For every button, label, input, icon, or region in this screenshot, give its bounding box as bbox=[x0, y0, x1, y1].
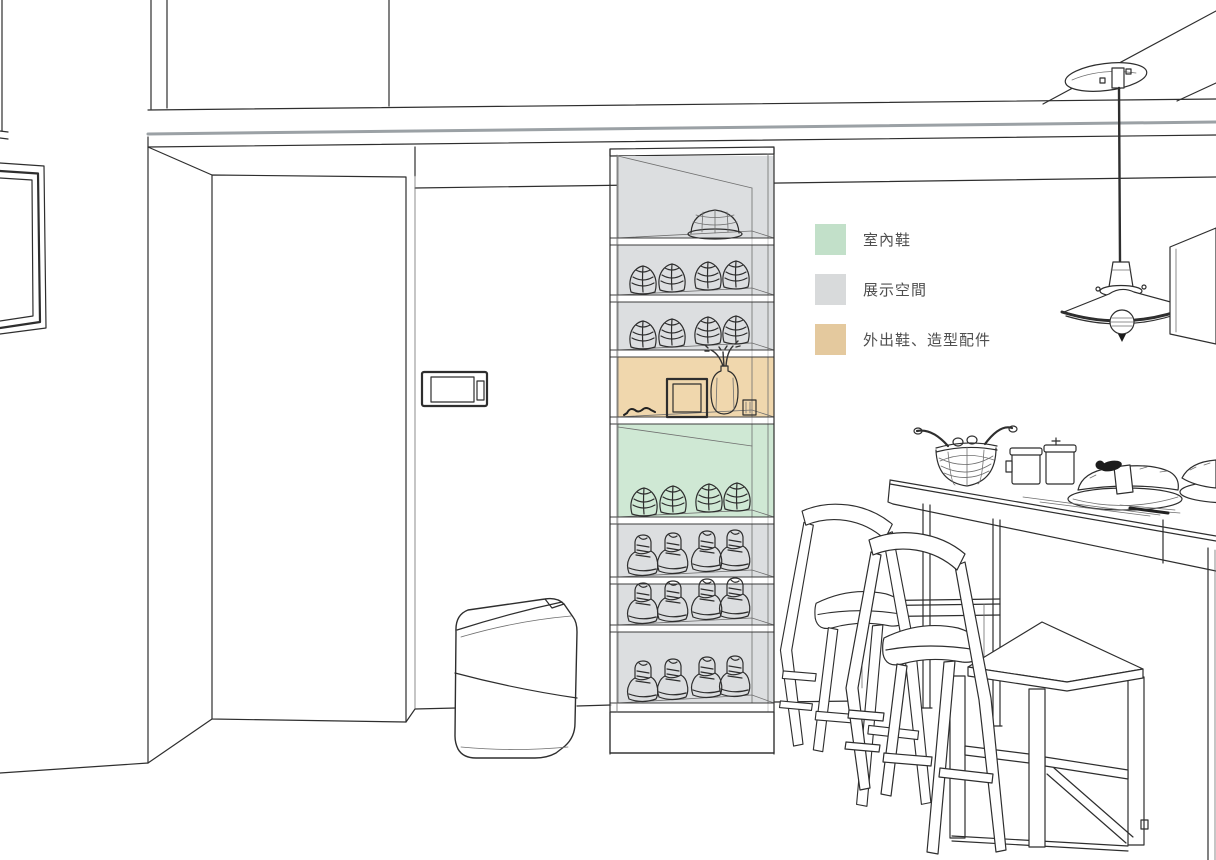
sketch-drawing bbox=[0, 0, 1216, 860]
intercom-buttons bbox=[477, 381, 484, 400]
entry-wall-and-door bbox=[148, 137, 415, 763]
legend-label-indoor-shoes: 室內鞋 bbox=[863, 229, 911, 250]
legend-label-display-space: 展示空間 bbox=[863, 279, 927, 300]
legend: 室內鞋 展示空間 外出鞋、造型配件 bbox=[815, 224, 991, 374]
legend-row-outdoor-shoes-accessories: 外出鞋、造型配件 bbox=[815, 324, 991, 355]
storage-ottoman bbox=[455, 599, 577, 758]
legend-swatch-outdoor-shoes-accessories bbox=[815, 324, 846, 355]
beam-accent-line bbox=[148, 122, 1216, 134]
cabinet-zone-display-6 bbox=[617, 632, 774, 703]
lamp-rod bbox=[1119, 88, 1120, 262]
legend-swatch-display-space bbox=[815, 274, 846, 305]
ceiling-beam bbox=[0, 0, 1216, 188]
right-wall-panel bbox=[1170, 228, 1216, 344]
utensil-basket bbox=[914, 426, 1017, 486]
cabinet-zone-outdoor-accessories bbox=[617, 357, 774, 417]
cabinet-base bbox=[610, 712, 774, 753]
ceiling-rose bbox=[1064, 59, 1149, 96]
legend-row-indoor-shoes: 室內鞋 bbox=[815, 224, 991, 255]
cabinet-zone-display-1 bbox=[617, 156, 774, 238]
shoe-cabinet bbox=[610, 147, 774, 754]
legend-label-outdoor-shoes-accessories: 外出鞋、造型配件 bbox=[863, 329, 991, 350]
legend-swatch-indoor-shoes bbox=[815, 224, 846, 255]
canisters bbox=[1006, 438, 1076, 484]
interior-sketch: 室內鞋 展示空間 外出鞋、造型配件 bbox=[0, 0, 1216, 860]
legend-row-display-space: 展示空間 bbox=[815, 274, 991, 305]
wall-frame bbox=[0, 163, 46, 334]
intercom-screen bbox=[431, 377, 474, 402]
door-panel bbox=[212, 175, 406, 722]
intercom-panel bbox=[422, 372, 487, 406]
